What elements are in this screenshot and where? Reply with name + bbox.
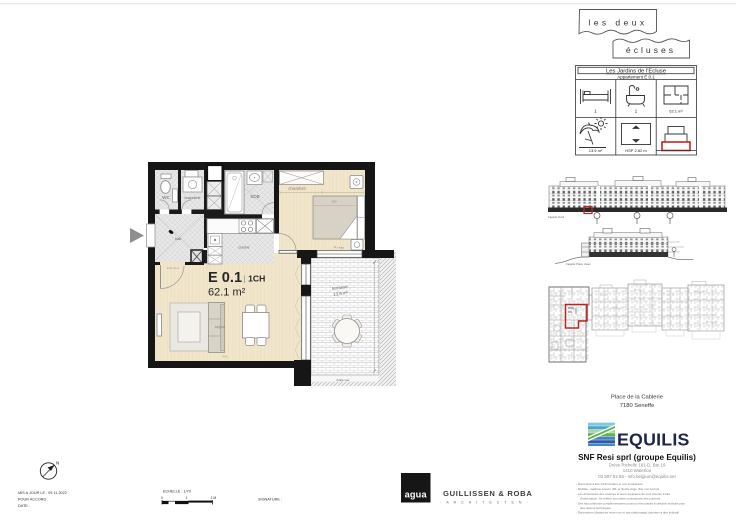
svg-text:- Des faux plafonds compléme: - Des faux plafonds complémentaires pour… xyxy=(576,502,685,506)
svg-text:2 M: 2 M xyxy=(211,496,217,500)
svg-text:EQUILIS: EQUILIS xyxy=(617,430,690,450)
svg-text:buanderie: buanderie xyxy=(185,196,201,200)
svg-text:cuisine: cuisine xyxy=(238,246,249,250)
svg-text:Appartement E 0.1: Appartement E 0.1 xyxy=(617,75,655,80)
svg-text:N: N xyxy=(56,461,59,466)
svg-text:ECHELLE : 1/70: ECHELLE : 1/70 xyxy=(163,490,191,494)
svg-text:160: 160 xyxy=(331,200,336,204)
svg-text:7180 Seneffe: 7180 Seneffe xyxy=(620,403,654,409)
svg-text:- Les dimensions des cuisine: - Les dimensions des cuisines et leurs é… xyxy=(576,492,671,496)
svg-text:limite vue: limite vue xyxy=(337,378,350,382)
svg-text:WC: WC xyxy=(162,195,170,200)
svg-text:SNF Resi sprl (groupe Equilis): SNF Resi sprl (groupe Equilis) xyxy=(578,453,696,462)
svg-text:Drève Richelle 161-D, Bte 19: Drève Richelle 161-D, Bte 19 xyxy=(609,463,666,468)
svg-text:P + bas: P + bas xyxy=(334,246,344,250)
svg-text:13.9 m²: 13.9 m² xyxy=(589,148,603,153)
svg-text:E 0.1: E 0.1 xyxy=(208,270,242,286)
svg-text:entre deux: entre deux xyxy=(167,266,180,270)
svg-text:agua: agua xyxy=(405,490,428,500)
svg-text:SIGNATURE :: SIGNATURE : xyxy=(258,498,282,502)
svg-text:GUILLISSEN & ROBA: GUILLISSEN & ROBA xyxy=(443,489,533,498)
svg-text:Place de la Cablerie: Place de la Cablerie xyxy=(611,395,663,401)
svg-text:les deux: les deux xyxy=(588,18,647,28)
svg-text:DATE :: DATE : xyxy=(18,504,30,508)
svg-text:4.60: 4.60 xyxy=(222,355,228,359)
svg-text:- A R C H I T E C T E N -: - A R C H I T E C T E N - xyxy=(440,501,529,505)
svg-text:1: 1 xyxy=(186,496,188,500)
svg-text:Façade Place d'eau: Façade Place d'eau xyxy=(566,262,591,266)
svg-text:- Document à titre d'informa: - Document à titre d'information et non … xyxy=(576,482,643,486)
svg-text:MIS A JOUR LE : 09.11.2022: MIS A JOUR LE : 09.11.2022 xyxy=(18,491,67,495)
svg-text:1410 Waterloo: 1410 Waterloo xyxy=(623,468,652,473)
svg-text:- Dimensions (distances entr: - Dimensions (distances entre mur et axe… xyxy=(576,511,679,515)
svg-text:hall: hall xyxy=(175,236,181,241)
svg-text:chambre: chambre xyxy=(288,186,306,191)
svg-text:HSP 2.62 m: HSP 2.62 m xyxy=(625,148,647,153)
svg-text:SDB: SDB xyxy=(250,194,259,199)
svg-text:62.1 m²: 62.1 m² xyxy=(669,109,683,114)
svg-text:séjour: séjour xyxy=(215,325,226,329)
svg-text:écluses: écluses xyxy=(626,45,676,55)
svg-text:des raisons techniques.: des raisons techniques. xyxy=(580,506,612,510)
svg-text:POUR ACCORD :: POUR ACCORD : xyxy=(18,498,48,502)
svg-text:0: 0 xyxy=(161,496,163,500)
svg-text:| 1CH: | 1CH xyxy=(244,274,266,284)
svg-text:62.1 m²: 62.1 m² xyxy=(208,287,246,299)
svg-text:02 897 52 65 - info.belgium@eq: 02 897 52 65 - info.belgium@equilis.net xyxy=(598,474,676,479)
svg-text:d'information. Se référer aux: d'information. Se référer aux plans cont… xyxy=(580,497,661,501)
svg-text:Façade Nord: Façade Nord xyxy=(548,215,565,219)
svg-text:- Mobilier, machine à laver: - Mobilier, machine à laver (ML et Sèche… xyxy=(576,487,660,491)
